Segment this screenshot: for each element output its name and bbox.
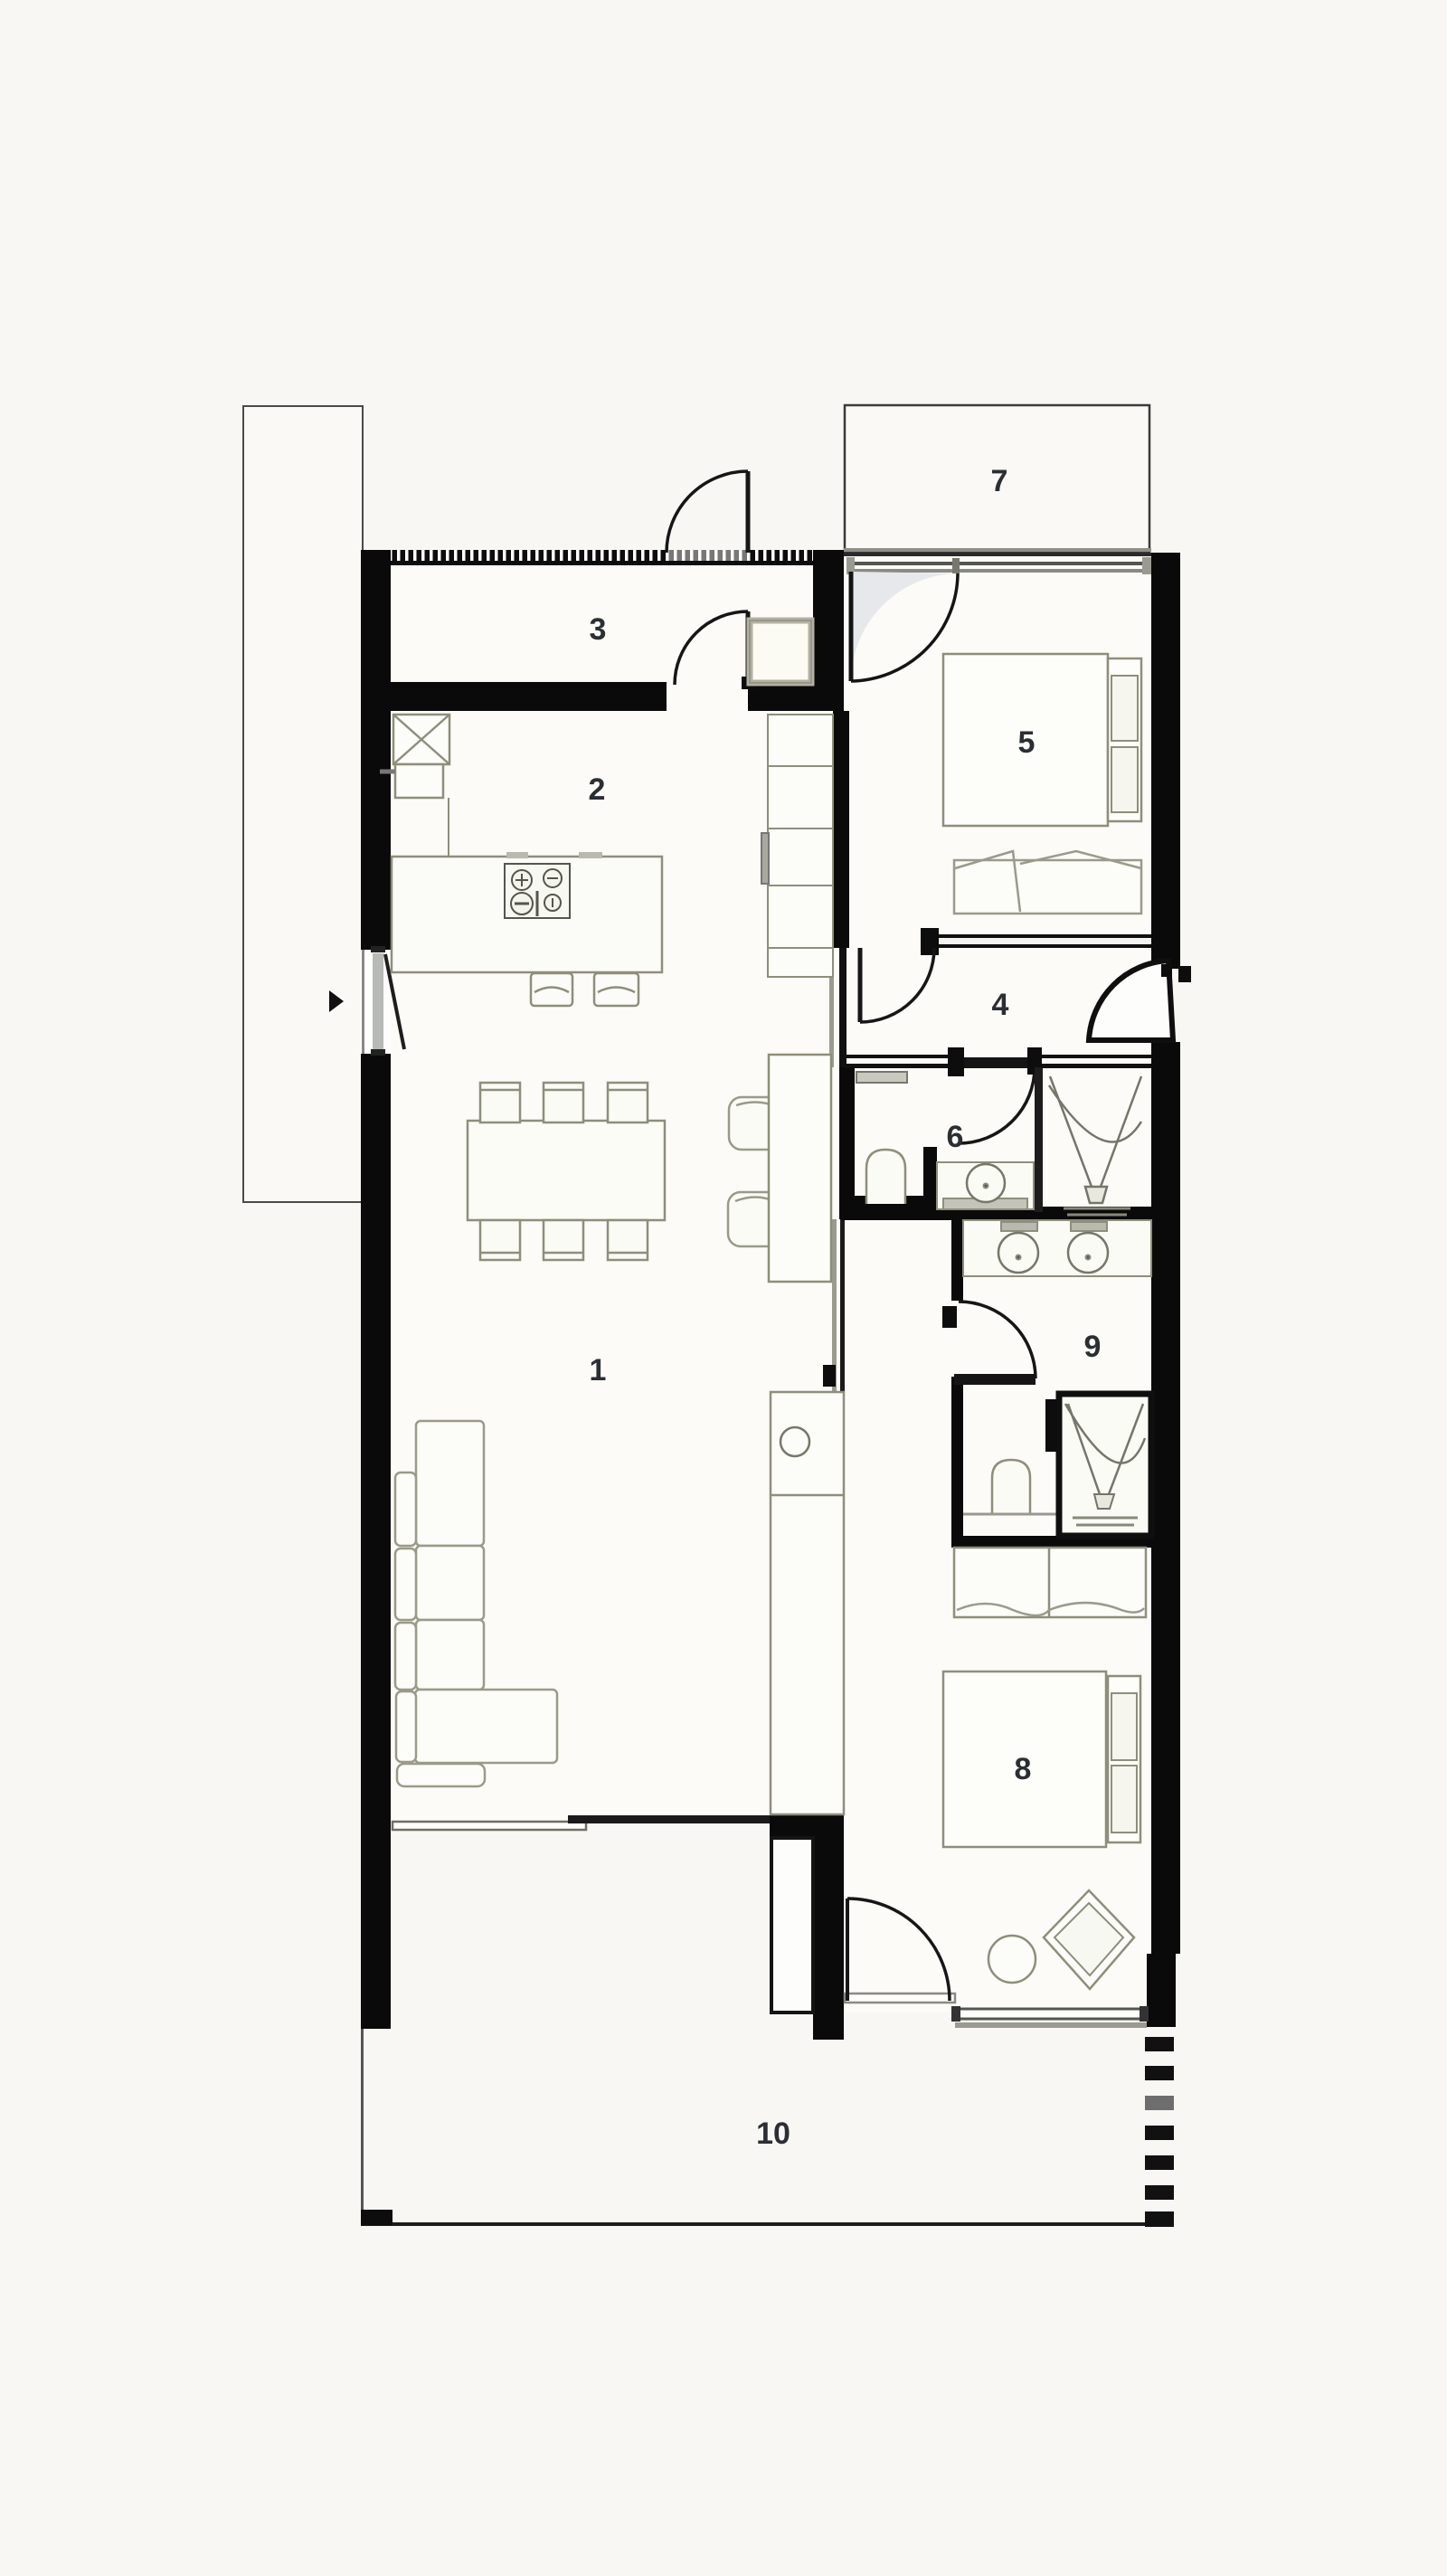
- svg-text:5: 5: [1018, 725, 1036, 760]
- svg-text:9: 9: [1084, 1330, 1102, 1364]
- svg-text:1: 1: [590, 1353, 607, 1387]
- svg-text:10: 10: [756, 2117, 790, 2151]
- svg-text:7: 7: [991, 464, 1008, 498]
- svg-text:6: 6: [947, 1120, 964, 1154]
- svg-text:3: 3: [590, 612, 607, 647]
- svg-text:4: 4: [992, 988, 1009, 1022]
- svg-text:2: 2: [589, 772, 606, 807]
- svg-text:8: 8: [1015, 1752, 1032, 1786]
